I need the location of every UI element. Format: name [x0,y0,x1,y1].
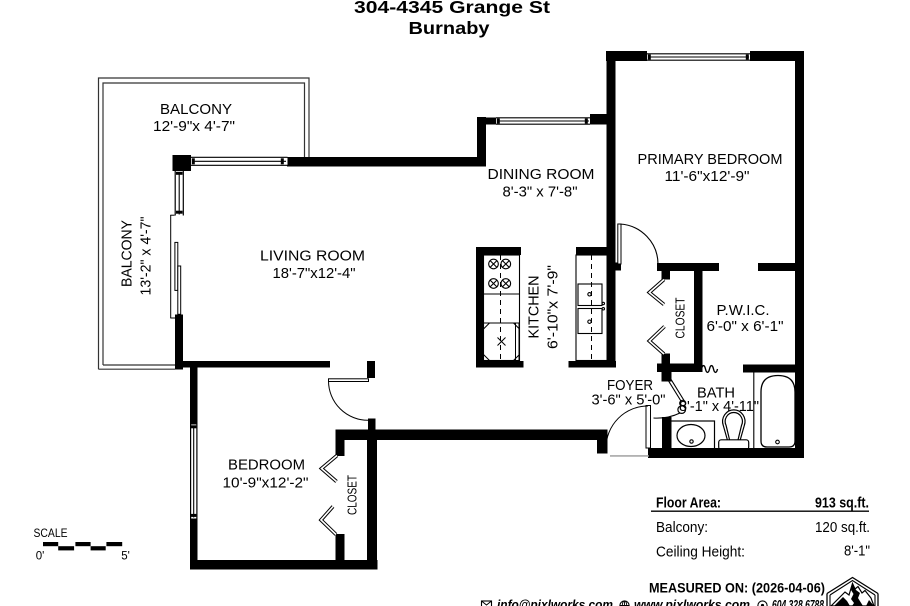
svg-text:www.pixlworks.com: www.pixlworks.com [634,598,750,606]
svg-text:8'-1" x 4'-11": 8'-1" x 4'-11" [679,398,759,415]
svg-text:11'-6"x12'-9": 11'-6"x12'-9" [665,168,750,185]
svg-text:304-4345 Grange St: 304-4345 Grange St [354,0,550,17]
svg-text:Floor Area:: Floor Area: [656,496,721,512]
svg-text:0': 0' [36,551,45,563]
svg-text:CLOSET: CLOSET [345,475,360,515]
svg-text:SCALE: SCALE [34,528,68,540]
svg-text:18'-7"x12'-4": 18'-7"x12'-4" [273,265,356,282]
svg-text:P.W.I.C.: P.W.I.C. [717,302,770,319]
svg-text:3'-6" x 5'-0": 3'-6" x 5'-0" [592,392,666,409]
svg-text:12'-9"x 4'-7": 12'-9"x 4'-7" [153,118,235,135]
svg-text:BEDROOM: BEDROOM [228,457,305,474]
svg-text:KITCHEN: KITCHEN [526,276,543,339]
svg-text:info@pixlworks.com: info@pixlworks.com [497,598,613,606]
svg-text:MEASURED ON: (2026-04-06): MEASURED ON: (2026-04-06) [649,580,825,596]
svg-text:8'-1": 8'-1" [844,544,870,560]
svg-text:8'-3" x 7'-8": 8'-3" x 7'-8" [503,184,578,201]
svg-text:BALCONY: BALCONY [119,220,136,287]
svg-text:120 sq.ft.: 120 sq.ft. [815,520,870,536]
svg-text:BALCONY: BALCONY [160,101,232,118]
svg-text:10'-9"x12'-2": 10'-9"x12'-2" [223,475,309,492]
svg-text:LIVING ROOM: LIVING ROOM [260,248,365,265]
svg-text:6'-0" x 6'-1": 6'-0" x 6'-1" [707,318,784,335]
svg-text:Balcony:: Balcony: [656,520,708,536]
svg-text:6'-10"x 7'-9": 6'-10"x 7'-9" [545,265,562,349]
svg-text:13'-2" x 4'-7": 13'-2" x 4'-7" [138,217,155,296]
svg-text:DINING ROOM: DINING ROOM [488,166,595,183]
svg-text:CLOSET: CLOSET [673,297,688,338]
svg-text:PRIMARY BEDROOM: PRIMARY BEDROOM [638,151,783,168]
svg-text:5': 5' [121,551,130,563]
svg-text:Burnaby: Burnaby [409,18,490,38]
svg-text:604 328 6788: 604 328 6788 [772,598,824,606]
svg-text:913 sq.ft.: 913 sq.ft. [815,496,869,512]
svg-text:Ceiling Height:: Ceiling Height: [656,545,745,561]
